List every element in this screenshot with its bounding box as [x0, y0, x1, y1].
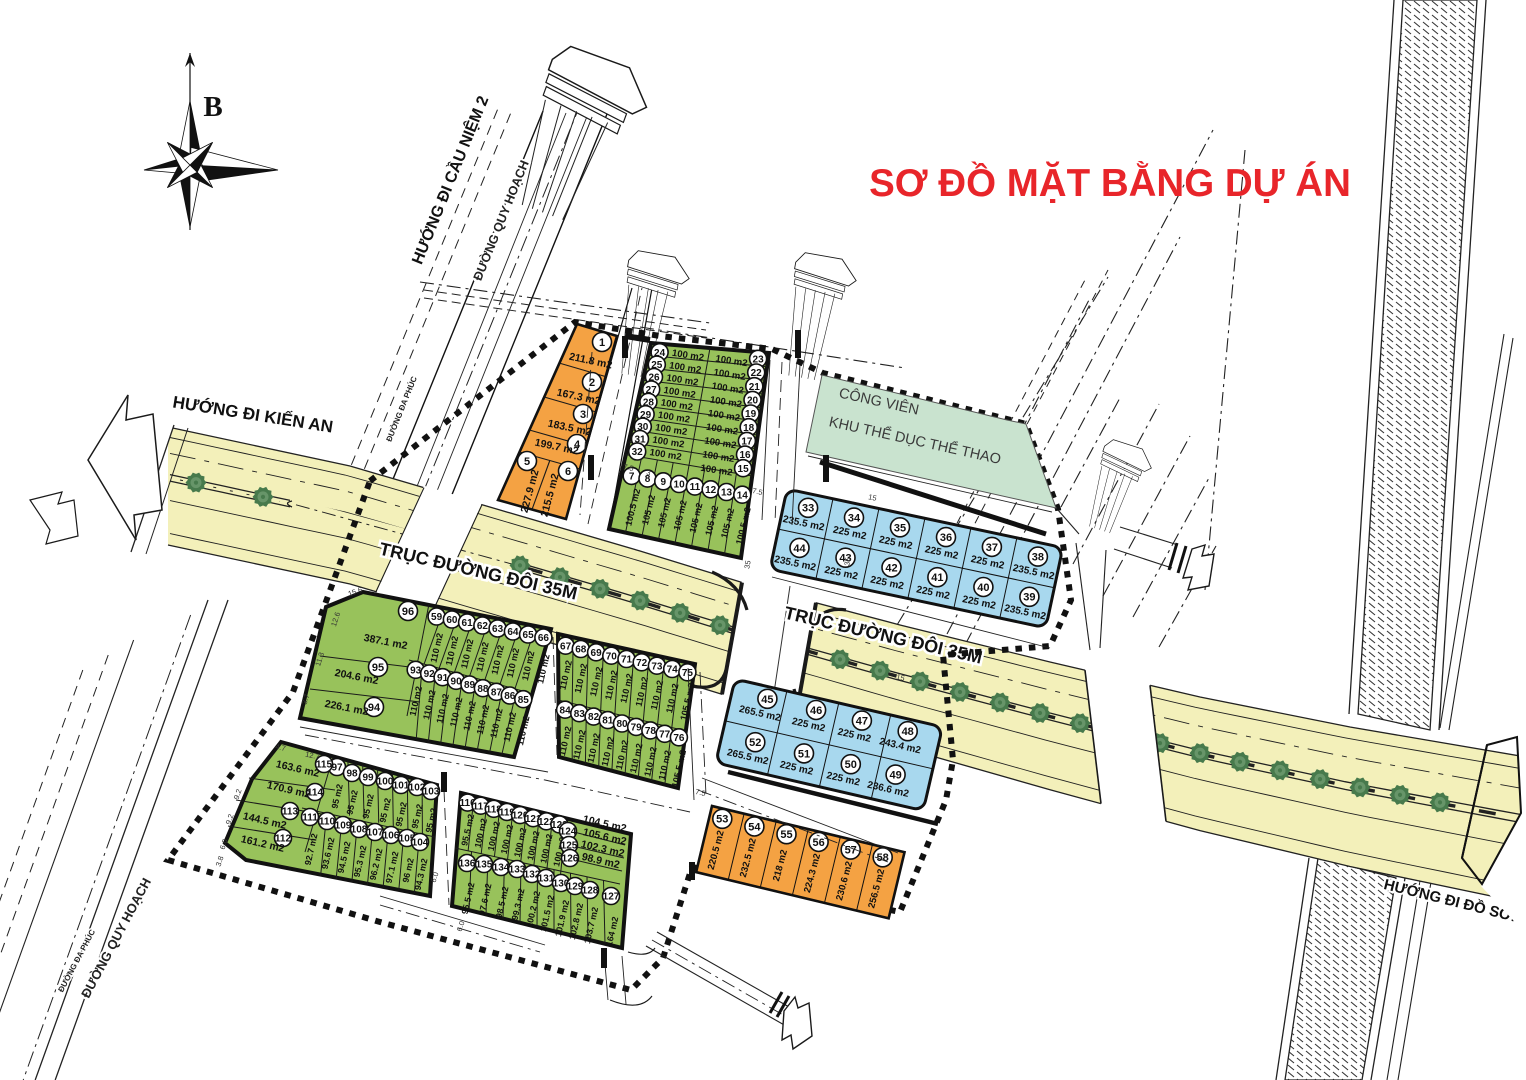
svg-text:79: 79	[631, 723, 643, 734]
svg-text:100: 100	[377, 777, 394, 788]
svg-text:SƠ ĐỒ MẶT BẰNG DỰ ÁN: SƠ ĐỒ MẶT BẰNG DỰ ÁN	[869, 161, 1351, 205]
svg-text:11: 11	[690, 482, 701, 493]
svg-text:42: 42	[885, 562, 897, 574]
svg-text:51: 51	[798, 748, 810, 760]
svg-text:44: 44	[793, 543, 806, 555]
svg-text:45: 45	[761, 694, 773, 706]
svg-text:50: 50	[845, 759, 857, 771]
svg-text:75: 75	[682, 668, 694, 679]
svg-text:94: 94	[368, 702, 381, 714]
svg-text:113: 113	[282, 807, 299, 818]
svg-text:1: 1	[599, 337, 605, 349]
svg-text:80: 80	[616, 719, 628, 730]
svg-text:38: 38	[1032, 552, 1044, 564]
svg-text:110: 110	[319, 817, 336, 828]
svg-text:37: 37	[986, 542, 998, 554]
svg-text:78: 78	[645, 726, 657, 737]
svg-text:5: 5	[524, 456, 530, 468]
svg-text:15: 15	[738, 464, 750, 475]
svg-text:67: 67	[560, 641, 572, 652]
svg-text:82: 82	[588, 712, 600, 723]
svg-text:96: 96	[402, 606, 414, 618]
svg-text:72: 72	[636, 658, 648, 669]
svg-text:47: 47	[856, 716, 868, 728]
svg-text:B: B	[203, 91, 222, 123]
svg-text:91: 91	[437, 673, 449, 684]
svg-text:66: 66	[538, 633, 550, 644]
svg-text:34: 34	[848, 513, 861, 525]
svg-text:33: 33	[802, 503, 814, 515]
svg-text:107: 107	[367, 828, 384, 839]
svg-text:98: 98	[346, 769, 358, 780]
svg-text:65: 65	[523, 630, 535, 641]
svg-text:84: 84	[560, 705, 572, 716]
svg-text:68: 68	[575, 645, 587, 656]
svg-text:6: 6	[565, 466, 571, 478]
svg-text:54: 54	[748, 821, 761, 833]
svg-text:35: 35	[842, 557, 852, 567]
svg-text:99: 99	[362, 773, 374, 784]
svg-text:13: 13	[721, 488, 733, 499]
svg-text:136: 136	[459, 859, 476, 870]
svg-text:61: 61	[462, 618, 474, 629]
svg-text:56: 56	[812, 837, 824, 849]
svg-text:64: 64	[507, 627, 519, 638]
svg-text:88: 88	[477, 684, 489, 695]
svg-text:9: 9	[661, 477, 667, 488]
svg-text:106: 106	[383, 831, 400, 842]
svg-text:46: 46	[810, 705, 822, 717]
svg-text:3: 3	[580, 409, 586, 421]
svg-text:93: 93	[410, 665, 422, 676]
svg-text:95: 95	[372, 662, 384, 674]
svg-text:109: 109	[335, 821, 352, 832]
svg-text:135: 135	[476, 860, 493, 871]
svg-text:111: 111	[302, 813, 318, 824]
svg-text:14: 14	[737, 490, 749, 501]
svg-text:7: 7	[629, 472, 635, 483]
svg-text:86: 86	[504, 691, 516, 702]
svg-text:108: 108	[351, 825, 368, 836]
svg-text:59: 59	[431, 612, 443, 623]
svg-text:83: 83	[574, 709, 586, 720]
svg-text:76: 76	[673, 733, 685, 744]
svg-text:71: 71	[621, 655, 633, 666]
svg-text:60: 60	[446, 615, 458, 626]
svg-text:40: 40	[977, 582, 989, 594]
svg-text:126: 126	[562, 854, 579, 865]
svg-text:101: 101	[393, 781, 410, 792]
svg-text:62: 62	[477, 621, 489, 632]
svg-text:35: 35	[894, 522, 906, 534]
svg-text:85: 85	[518, 695, 530, 706]
svg-text:128: 128	[582, 886, 599, 897]
svg-text:70: 70	[606, 651, 618, 662]
svg-text:36: 36	[940, 532, 952, 544]
svg-text:10: 10	[674, 480, 686, 491]
svg-text:39: 39	[1023, 592, 1035, 604]
svg-text:77: 77	[659, 729, 671, 740]
svg-text:35: 35	[742, 560, 752, 570]
svg-text:127: 127	[603, 892, 620, 903]
svg-text:49: 49	[889, 770, 901, 782]
svg-text:53: 53	[716, 814, 728, 826]
svg-text:63: 63	[492, 624, 504, 635]
svg-text:74: 74	[667, 665, 679, 676]
svg-text:103: 103	[423, 787, 440, 798]
svg-text:134: 134	[493, 863, 510, 874]
svg-text:52: 52	[749, 737, 761, 749]
svg-text:81: 81	[602, 716, 614, 727]
svg-text:57: 57	[845, 845, 857, 857]
svg-text:32: 32	[632, 447, 644, 458]
svg-text:41: 41	[931, 572, 943, 584]
svg-text:73: 73	[651, 661, 663, 672]
svg-text:69: 69	[591, 648, 603, 659]
svg-text:12: 12	[705, 485, 717, 496]
svg-text:48: 48	[902, 726, 914, 738]
svg-text:104: 104	[412, 838, 429, 849]
svg-text:55: 55	[780, 829, 792, 841]
